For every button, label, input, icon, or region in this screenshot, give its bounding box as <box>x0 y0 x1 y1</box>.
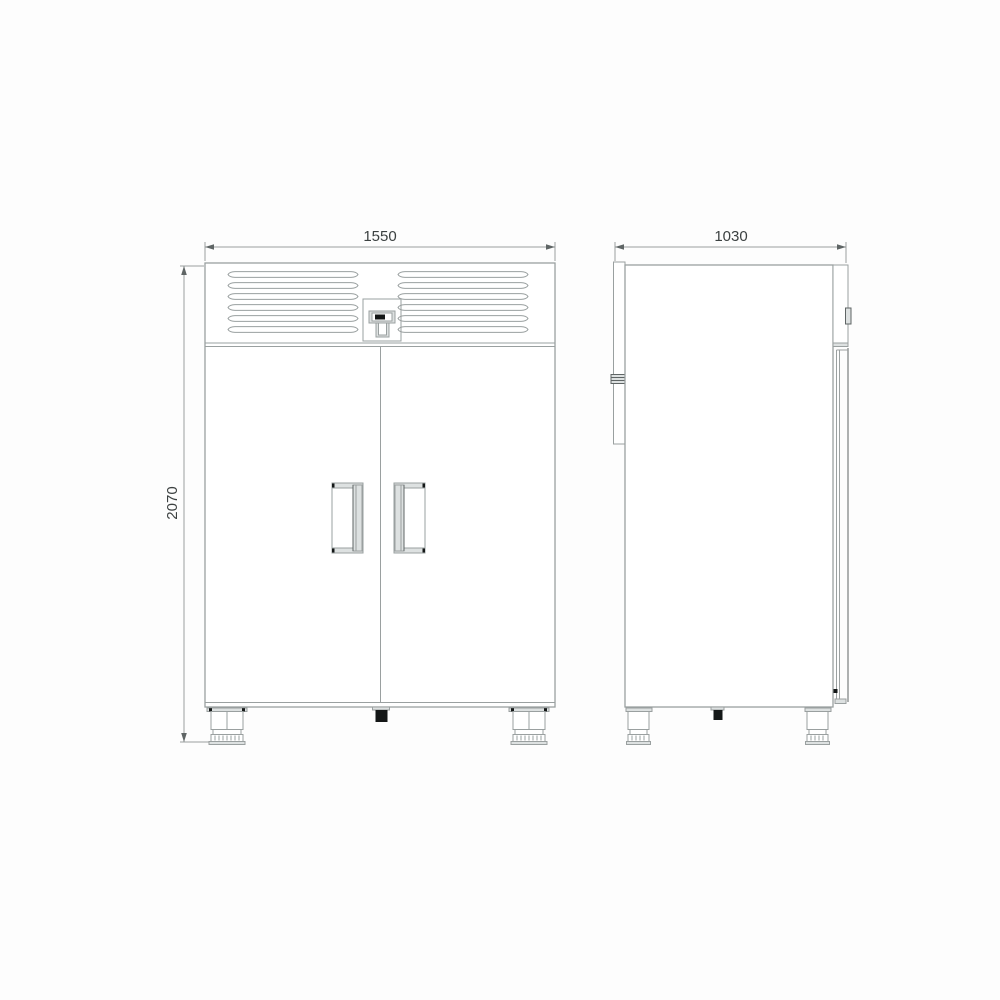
front-height-label: 2070 <box>164 486 181 519</box>
vent-slat <box>398 305 528 311</box>
right-door-handle <box>394 483 425 553</box>
side-depth-dimension: 1030 <box>615 228 846 263</box>
vent-slat <box>228 294 358 300</box>
display-screen <box>375 315 385 320</box>
front-center-drain <box>373 707 390 722</box>
side-left-foot <box>626 708 652 745</box>
side-right-foot <box>805 708 831 745</box>
technical-drawing: 1550 2070 <box>0 0 1000 1000</box>
side-door <box>834 348 849 704</box>
vent-slat <box>398 327 528 333</box>
front-view: 1550 2070 <box>164 228 555 745</box>
vent-slat <box>398 283 528 289</box>
front-left-foot <box>207 708 247 745</box>
vent-slat <box>228 327 358 333</box>
arrowhead-right <box>837 244 846 250</box>
side-top-strip <box>833 265 851 347</box>
arrowhead-bottom <box>181 733 187 742</box>
drawing-canvas: 1550 2070 <box>0 0 1000 1000</box>
vent-slat <box>228 316 358 322</box>
lower-hinge-pin <box>834 689 838 693</box>
lock-cylinder <box>379 323 387 335</box>
door-bottom-cap <box>835 699 846 704</box>
door-hinge <box>846 308 852 324</box>
vent-slat <box>228 305 358 311</box>
vent-slat <box>398 272 528 278</box>
vent-slat <box>228 272 358 278</box>
side-center-drain <box>711 707 724 720</box>
vent-slat <box>398 316 528 322</box>
front-width-label: 1550 <box>363 228 396 245</box>
left-door-handle <box>332 483 363 553</box>
cabinet-body-side <box>625 265 833 707</box>
front-right-foot <box>509 708 549 745</box>
strip-cap <box>833 343 848 347</box>
arrowhead-top <box>181 266 187 275</box>
arrowhead-left <box>205 244 214 250</box>
vent-slat <box>228 283 358 289</box>
vent-slat <box>398 294 528 300</box>
front-width-dimension: 1550 <box>205 228 555 261</box>
side-depth-label: 1030 <box>714 228 747 245</box>
arrowhead-left <box>615 244 624 250</box>
side-view: 1030 <box>611 228 851 745</box>
arrowhead-right <box>546 244 555 250</box>
